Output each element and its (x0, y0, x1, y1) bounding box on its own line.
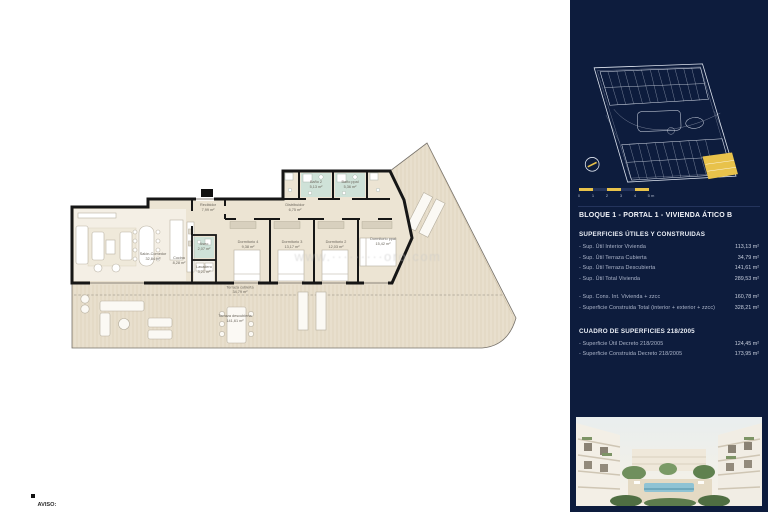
floor-plan: Salón-Comedor 32,84 m² Cocina 8,28 m² Re… (0, 0, 570, 512)
scale-tick: 5 m (648, 193, 655, 198)
svg-text:7,99 m²: 7,99 m² (202, 208, 216, 212)
svg-text:2,07 m²: 2,07 m² (198, 247, 212, 251)
floor-plan-drawing: Salón-Comedor 32,84 m² Cocina 8,28 m² Re… (0, 0, 570, 512)
scale-tick: 1 (592, 193, 595, 198)
svg-text:32,84 m²: 32,84 m² (146, 257, 162, 261)
svg-text:34,79 m²: 34,79 m² (233, 290, 249, 294)
svg-text:8,28 m²: 8,28 m² (173, 261, 187, 265)
room-label: Recibidor (200, 203, 217, 207)
surface-row: - Superficie Construida Decreto 218/2005… (579, 351, 759, 357)
section-title: SUPERFICIES ÚTILES Y CONSTRUIDAS (579, 231, 759, 238)
site-key-plan (575, 56, 763, 186)
room-label: Lavadero (196, 265, 212, 269)
svg-text:141,61 m²: 141,61 m² (226, 319, 244, 323)
room-label: Dormitorio 2 (326, 240, 347, 244)
brochure-page: Salón-Comedor 32,84 m² Cocina 8,28 m² Re… (0, 0, 768, 512)
svg-text:5,36 m²: 5,36 m² (344, 185, 358, 189)
room-label: Distribuidor (285, 203, 305, 207)
surface-row: - Sup. Útil Total Vivienda 289,53 m² (579, 276, 759, 282)
scale-tick: 3 (620, 193, 623, 198)
bullet-square-icon (31, 494, 35, 498)
watermark: www.·········oro.com (294, 249, 442, 264)
surface-row: - Superficie Construida Total (interior … (579, 305, 759, 311)
building-block-top (600, 68, 708, 105)
scale-tick: 4 (634, 193, 637, 198)
surface-row: - Superficie Útil Decreto 218/2005 124,4… (579, 341, 759, 347)
terrace-covered-label: Terraza cubierta (226, 286, 254, 290)
terrace-uncovered-label: Terraza descubierta (218, 314, 252, 318)
room-label: Baño 2 (310, 180, 322, 184)
room-label: Aseo (200, 242, 209, 246)
room-label: Baño ppal (341, 180, 358, 184)
room-label: Salón-Comedor (140, 252, 167, 256)
svg-text:5,13 m²: 5,13 m² (310, 185, 324, 189)
room-label: Dormitorio 4 (238, 240, 259, 244)
highlighted-unit (702, 153, 737, 180)
north-arrow-icon (585, 157, 599, 171)
disclaimer: AVISO: El presente documento es de carác… (31, 493, 561, 512)
surface-row: - Sup. Útil Interior Vivienda 113,13 m² (579, 244, 759, 250)
surface-row: - Sup. Útil Terraza Cubierta 34,79 m² (579, 255, 759, 261)
room-label: Dormitorio ppal (370, 237, 396, 241)
courtyard-pool (606, 109, 724, 142)
surfaces-panel: SUPERFICIES ÚTILES Y CONSTRUIDAS - Sup. … (579, 231, 759, 362)
scale-tick: 2 (606, 193, 609, 198)
room-label: Cocina (173, 256, 186, 260)
spacer (579, 286, 759, 294)
scale-bar: 0 1 2 3 4 5 m (578, 186, 708, 202)
disclaimer-title: AVISO: (38, 502, 57, 508)
spacer (579, 316, 759, 328)
surface-row: - Sup. Útil Terraza Descubierta 141,61 m… (579, 265, 759, 271)
room-label: Dormitorio 3 (282, 240, 303, 244)
svg-text:9,38 m²: 9,38 m² (242, 245, 256, 249)
scale-tick: 0 (578, 193, 581, 198)
building-render-image (576, 417, 762, 506)
unit-title: BLOQUE 1 - PORTAL 1 - VIVIENDA ÁTICO B (579, 212, 762, 219)
svg-text:3,21 m²: 3,21 m² (198, 270, 212, 274)
divider (578, 206, 760, 207)
info-sidebar: 0 1 2 3 4 5 m BLOQUE 1 - PORTAL 1 - VIVI… (570, 0, 768, 512)
section-title: CUADRO DE SUPERFICIES 218/2005 (579, 328, 759, 335)
svg-text:6,75 m²: 6,75 m² (289, 208, 303, 212)
svg-text:15,42 m²: 15,42 m² (376, 242, 392, 246)
surface-row: - Sup. Cons. Int. Vivienda + zzcc 160,78… (579, 294, 759, 300)
